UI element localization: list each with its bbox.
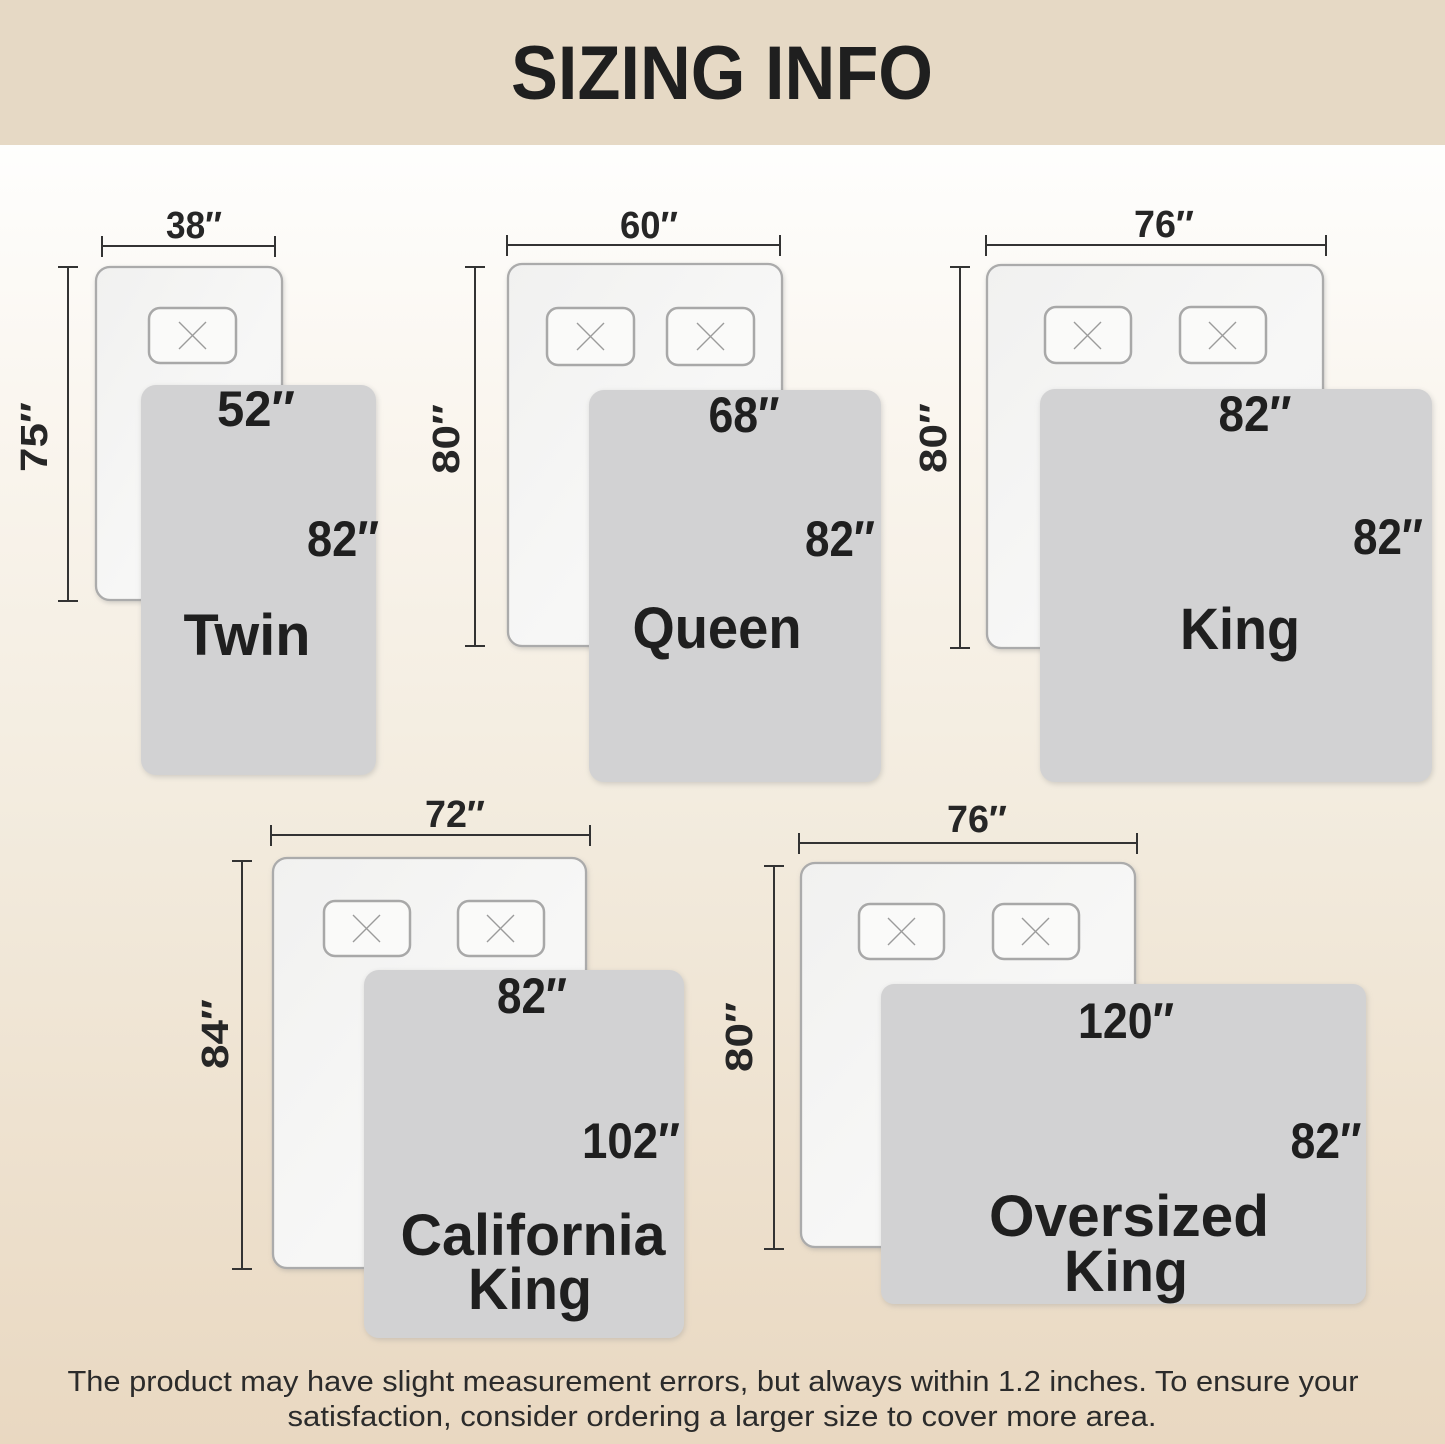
svg-text:80″: 80″ <box>426 404 468 474</box>
svg-text:satisfaction, consider orderin: satisfaction, consider ordering a larger… <box>288 1401 1157 1433</box>
svg-text:120″: 120″ <box>1078 993 1174 1049</box>
svg-text:82″: 82″ <box>1219 386 1292 442</box>
svg-text:King: King <box>468 1257 592 1322</box>
svg-text:82″: 82″ <box>307 511 379 567</box>
svg-text:Queen: Queen <box>633 596 802 661</box>
svg-text:38″: 38″ <box>166 205 222 247</box>
svg-text:82″: 82″ <box>805 511 875 567</box>
svg-text:68″: 68″ <box>709 387 780 443</box>
svg-text:Twin: Twin <box>184 603 311 668</box>
svg-text:80″: 80″ <box>719 1002 761 1072</box>
svg-text:102″: 102″ <box>582 1113 680 1169</box>
svg-text:SIZING INFO: SIZING INFO <box>511 31 933 116</box>
svg-text:84″: 84″ <box>195 999 237 1069</box>
svg-text:82″: 82″ <box>1353 509 1423 565</box>
svg-text:80″: 80″ <box>913 403 955 473</box>
svg-text:76″: 76″ <box>1134 204 1194 246</box>
svg-text:75″: 75″ <box>14 402 56 472</box>
svg-text:60″: 60″ <box>620 205 678 247</box>
svg-text:72″: 72″ <box>425 794 485 836</box>
svg-text:82″: 82″ <box>497 968 567 1024</box>
svg-text:52″: 52″ <box>217 381 295 437</box>
svg-text:76″: 76″ <box>947 799 1007 841</box>
svg-text:King: King <box>1180 597 1300 662</box>
svg-text:82″: 82″ <box>1291 1113 1362 1169</box>
svg-text:King: King <box>1064 1239 1188 1304</box>
svg-text:The product may have slight me: The product may have slight measurement … <box>68 1366 1359 1398</box>
